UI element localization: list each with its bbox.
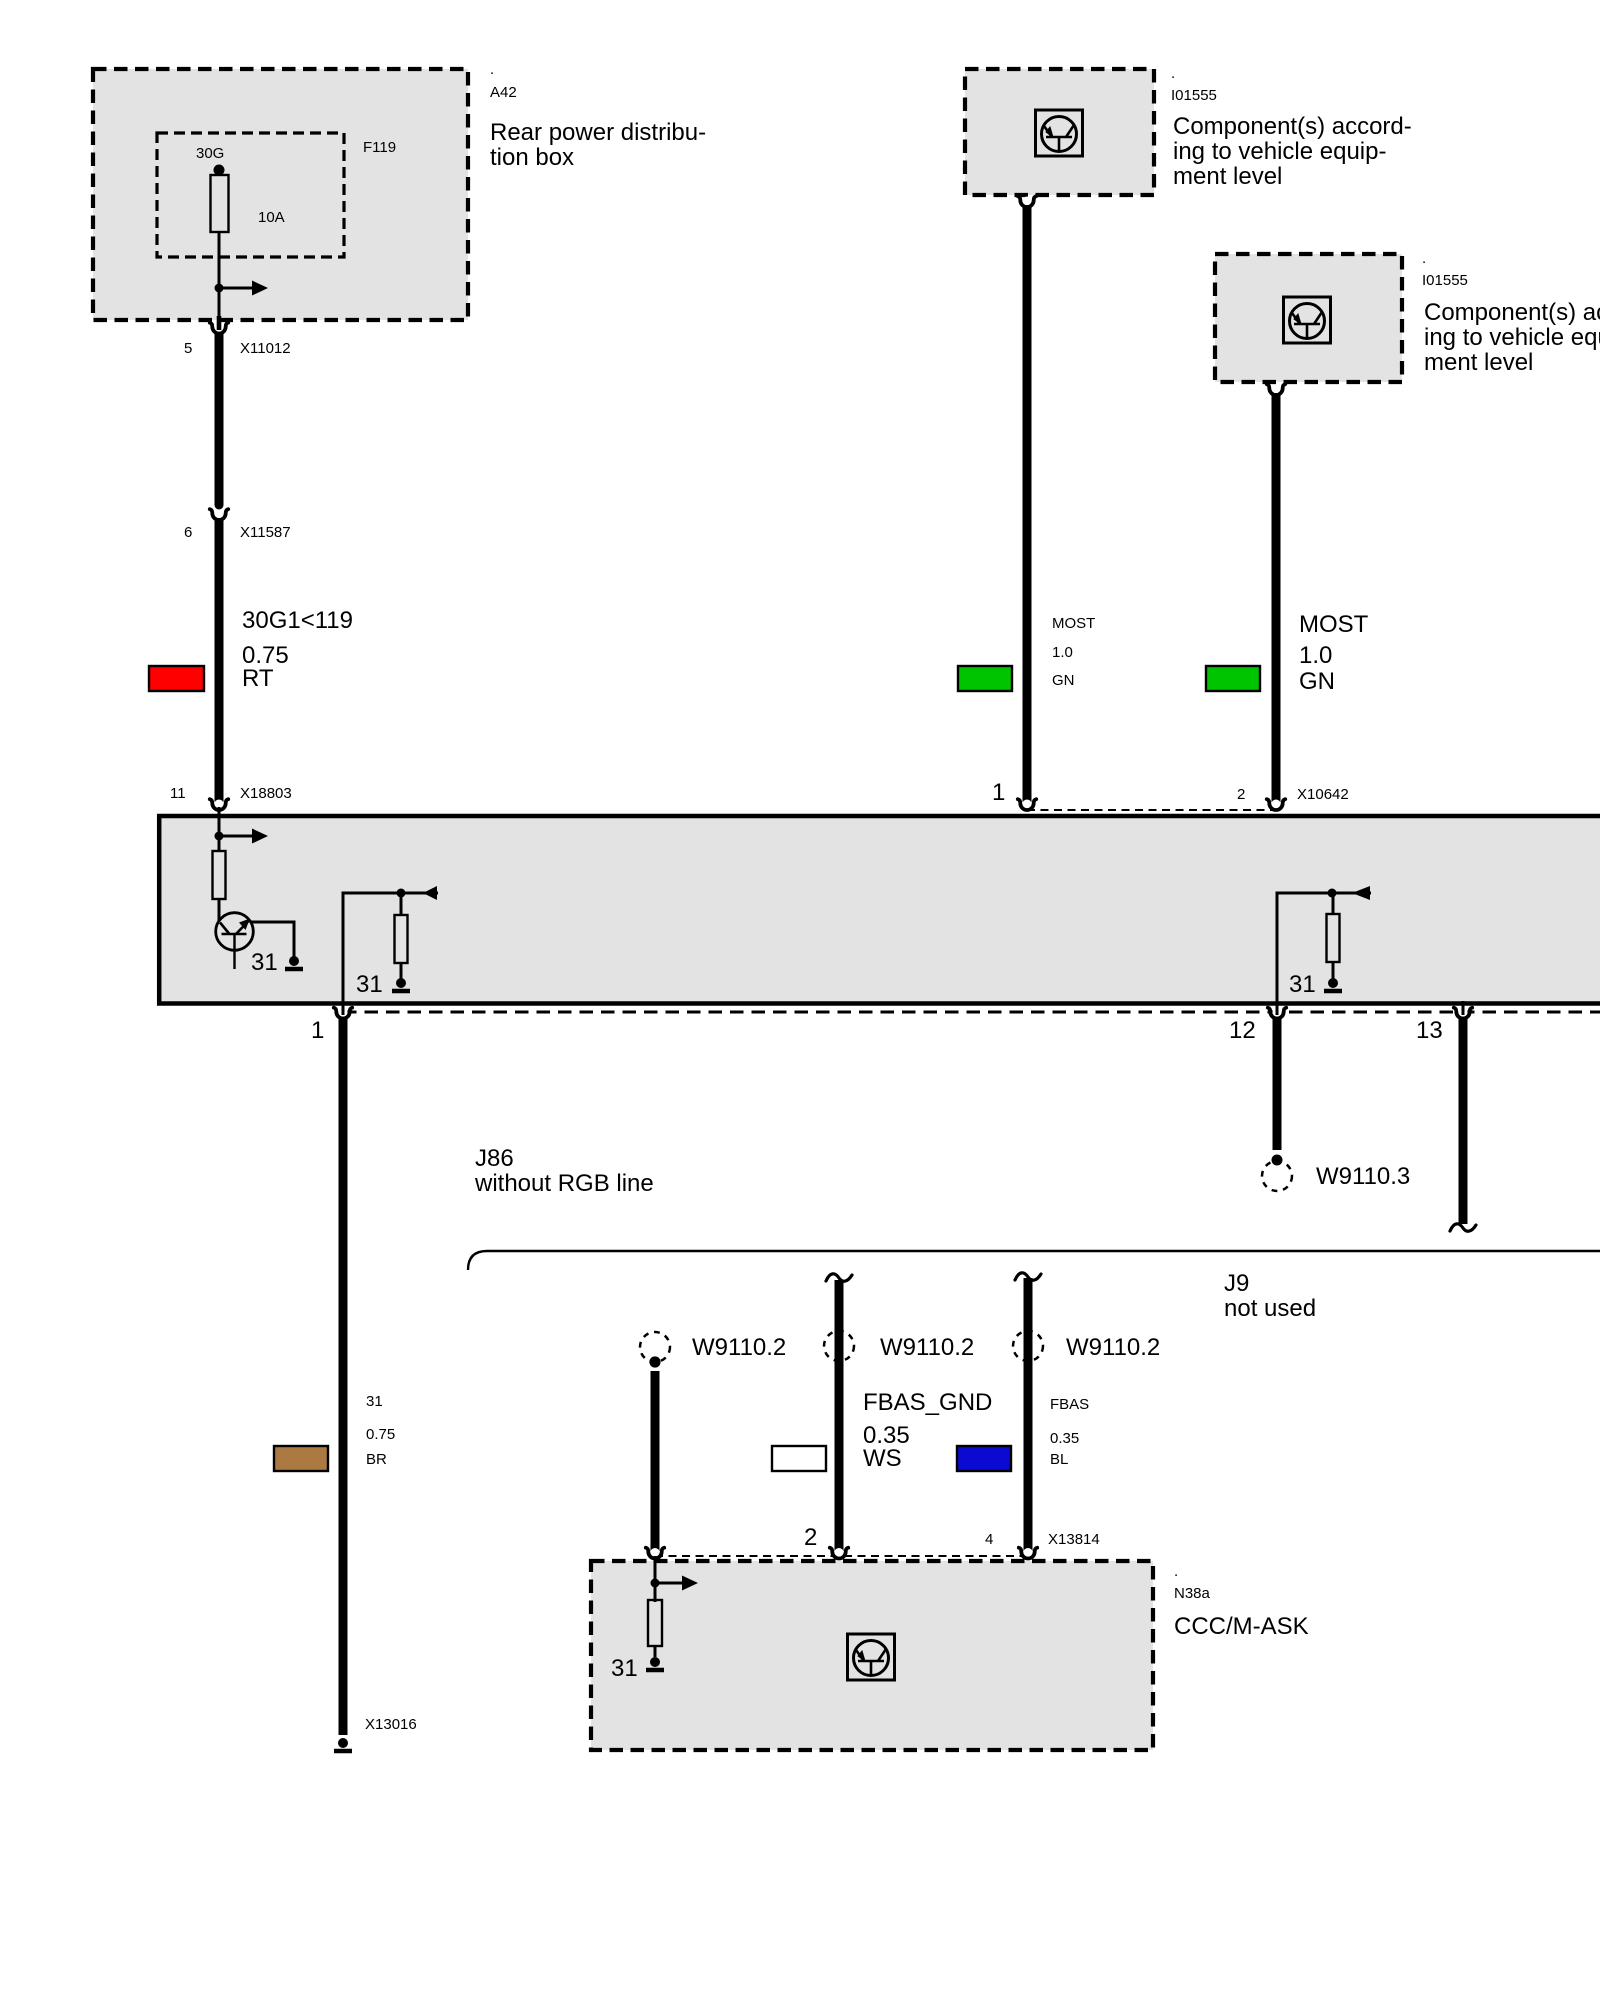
svg-text:.: . — [1422, 250, 1426, 267]
svg-text:Rear power distribu-: Rear power distribu- — [490, 119, 706, 146]
svg-text:12: 12 — [1229, 1017, 1256, 1044]
svg-text:1: 1 — [992, 779, 1005, 806]
svg-text:X11012: X11012 — [240, 340, 291, 357]
svg-text:without RGB line: without RGB line — [474, 1170, 654, 1197]
svg-text:1.0: 1.0 — [1299, 642, 1332, 669]
svg-text:0.75: 0.75 — [366, 1426, 395, 1443]
svg-text:W9110.3: W9110.3 — [1316, 1163, 1410, 1190]
svg-text:tion box: tion box — [490, 144, 574, 171]
svg-text:J9: J9 — [1224, 1270, 1249, 1297]
svg-text:30G: 30G — [196, 145, 224, 162]
svg-text:ing to vehicle equip-: ing to vehicle equip- — [1173, 138, 1386, 165]
svg-text:W9110.2: W9110.2 — [880, 1334, 974, 1361]
svg-text:31: 31 — [251, 949, 278, 976]
svg-text:6: 6 — [184, 524, 192, 541]
svg-text:F119: F119 — [363, 139, 396, 156]
svg-text:31: 31 — [356, 971, 383, 998]
svg-text:Component(s) accord-: Component(s) accord- — [1424, 299, 1600, 326]
svg-text:MOST: MOST — [1052, 615, 1095, 632]
svg-text:X13016: X13016 — [365, 1716, 417, 1733]
svg-text:BR: BR — [366, 1451, 387, 1468]
svg-text:31: 31 — [1289, 971, 1316, 998]
svg-text:ment level: ment level — [1424, 349, 1533, 376]
svg-text:4: 4 — [985, 1531, 993, 1548]
svg-text:I01555: I01555 — [1171, 87, 1217, 104]
svg-text:2: 2 — [1237, 786, 1245, 803]
svg-text:31: 31 — [611, 1655, 638, 1682]
svg-text:not used: not used — [1224, 1295, 1316, 1322]
svg-text:RT: RT — [242, 665, 274, 692]
svg-text:GN: GN — [1052, 672, 1075, 689]
svg-text:MOST: MOST — [1299, 611, 1369, 638]
svg-text:13: 13 — [1416, 1017, 1443, 1044]
svg-text:.: . — [1174, 1563, 1178, 1580]
svg-text:2: 2 — [804, 1524, 817, 1551]
svg-text:W9110.2: W9110.2 — [1066, 1334, 1160, 1361]
svg-text:31: 31 — [366, 1393, 383, 1410]
svg-text:I01555: I01555 — [1422, 272, 1468, 289]
svg-text:X10642: X10642 — [1297, 786, 1349, 803]
svg-text:WS: WS — [863, 1445, 902, 1472]
svg-text:5: 5 — [184, 340, 192, 357]
svg-text:CCC/M-ASK: CCC/M-ASK — [1174, 1613, 1309, 1640]
svg-text:FBAS: FBAS — [1050, 1396, 1089, 1413]
svg-text:A42: A42 — [490, 84, 517, 101]
svg-text:ment level: ment level — [1173, 163, 1282, 190]
svg-text:BL: BL — [1050, 1451, 1068, 1468]
svg-text:.: . — [1171, 65, 1175, 82]
svg-text:10A: 10A — [258, 209, 285, 226]
svg-text:X13814: X13814 — [1048, 1531, 1100, 1548]
svg-text:.: . — [490, 61, 494, 78]
svg-text:1.0: 1.0 — [1052, 644, 1073, 661]
svg-text:GN: GN — [1299, 668, 1335, 695]
svg-text:X18803: X18803 — [240, 785, 292, 802]
svg-text:N38a: N38a — [1174, 1585, 1211, 1602]
svg-text:Component(s) accord-: Component(s) accord- — [1173, 113, 1412, 140]
svg-text:0.35: 0.35 — [1050, 1430, 1079, 1447]
svg-text:30G1<119: 30G1<119 — [242, 607, 353, 634]
svg-text:1: 1 — [311, 1017, 324, 1044]
svg-text:J86: J86 — [475, 1145, 514, 1172]
svg-text:ing to vehicle equip-: ing to vehicle equip- — [1424, 324, 1600, 351]
svg-text:FBAS_GND: FBAS_GND — [863, 1389, 992, 1416]
svg-text:X11587: X11587 — [240, 524, 291, 541]
svg-text:11: 11 — [170, 785, 186, 802]
svg-text:W9110.2: W9110.2 — [692, 1334, 786, 1361]
